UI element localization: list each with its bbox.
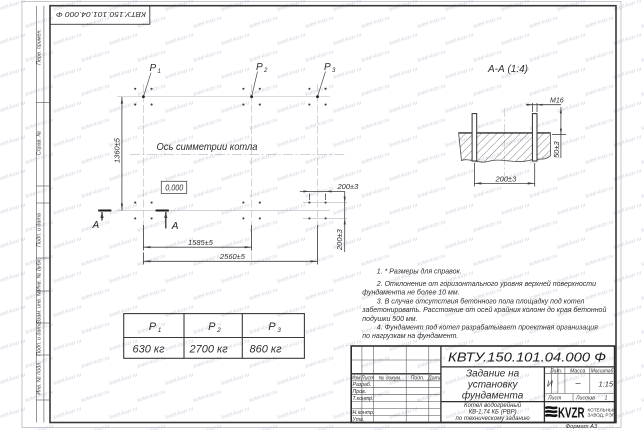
svg-text:2560±5: 2560±5 xyxy=(219,252,246,261)
svg-text:3: 3 xyxy=(277,327,281,334)
svg-text:КВТУ.150.101.04.000 Ф: КВТУ.150.101.04.000 Ф xyxy=(56,10,146,19)
svg-text:Листов: Листов xyxy=(575,396,595,402)
svg-text:Подп. и дата: Подп. и дата xyxy=(37,213,43,247)
svg-text:установку: установку xyxy=(467,380,519,391)
svg-text:1: 1 xyxy=(605,396,608,402)
svg-text:Н.контр.: Н.контр. xyxy=(353,410,375,416)
svg-text:Взам. инв. №: Взам. инв. № xyxy=(37,290,43,324)
svg-text:А: А xyxy=(171,221,179,232)
svg-text:№ докум.: № докум. xyxy=(379,376,402,382)
svg-text:Р: Р xyxy=(256,62,263,73)
svg-text:А: А xyxy=(92,220,100,231)
svg-text:Справ. №: Справ. № xyxy=(37,131,43,156)
svg-text:фундамента: фундамента xyxy=(462,389,524,401)
svg-text:фундамента не более 10 мм.: фундамента не более 10 мм. xyxy=(362,289,459,297)
svg-text:2: 2 xyxy=(263,68,268,74)
svg-text:3. В случае отсутствия бетонно: 3. В случае отсутствия бетонного пола пл… xyxy=(377,298,585,306)
svg-text:А-А (1:4): А-А (1:4) xyxy=(487,64,528,75)
svg-text:1360±5: 1360±5 xyxy=(113,137,122,163)
svg-text:Лист: Лист xyxy=(360,376,375,382)
svg-text:Т.контр.: Т.контр. xyxy=(353,396,374,402)
svg-text:Пров.: Пров. xyxy=(353,389,367,395)
svg-text:0,000: 0,000 xyxy=(165,184,183,193)
svg-text:Задание на: Задание на xyxy=(466,369,520,380)
svg-text:Инв. № подл.: Инв. № подл. xyxy=(37,361,43,394)
svg-text:200±3: 200±3 xyxy=(337,182,360,191)
svg-text:Ось симметрии котла: Ось симметрии котла xyxy=(157,141,258,153)
svg-text:2: 2 xyxy=(216,327,221,334)
svg-text:Р: Р xyxy=(149,321,157,333)
svg-text:Р: Р xyxy=(150,63,157,74)
svg-text:Р: Р xyxy=(324,62,331,73)
svg-text:Р: Р xyxy=(208,321,216,333)
svg-text:1. * Размеры для справок.: 1. * Размеры для справок. xyxy=(377,268,462,276)
svg-text:50±3: 50±3 xyxy=(552,141,561,158)
svg-text:1:15: 1:15 xyxy=(599,379,614,388)
svg-text:2700 кг: 2700 кг xyxy=(189,344,229,356)
svg-text:1: 1 xyxy=(158,327,162,334)
svg-text:860 кг: 860 кг xyxy=(250,344,283,356)
svg-text:Перв. примен.: Перв. примен. xyxy=(37,29,43,65)
svg-text:Подп. и дата: Подп. и дата xyxy=(37,322,43,356)
svg-text:Лист: Лист xyxy=(547,396,562,402)
svg-text:забетонировать. Расстояние от: забетонировать. Расстояние от осей крайн… xyxy=(361,306,606,314)
svg-text:200±3: 200±3 xyxy=(495,175,518,184)
svg-text:КВ-1,74 КБ (РВР): КВ-1,74 КБ (РВР) xyxy=(469,410,517,416)
svg-text:М16: М16 xyxy=(550,97,564,104)
svg-text:Подп.: Подп. xyxy=(411,376,425,382)
svg-text:Лит.: Лит. xyxy=(549,368,562,374)
svg-text:подушки 500 мм.: подушки 500 мм. xyxy=(362,315,417,323)
svg-text:2. Отклонение от горизонтально: 2. Отклонение от горизонтального уровня … xyxy=(376,280,596,288)
svg-text:Котел водогрейный: Котел водогрейный xyxy=(464,402,522,409)
svg-text:Формат А3: Формат А3 xyxy=(566,424,598,430)
svg-text:КОТЕЛЬНЫЙ: КОТЕЛЬНЫЙ xyxy=(588,405,617,412)
svg-text:200±3: 200±3 xyxy=(335,228,344,251)
svg-text:по техническому заданию: по техническому заданию xyxy=(456,416,531,422)
svg-text:1: 1 xyxy=(158,69,161,75)
svg-text:Масса: Масса xyxy=(570,368,585,374)
svg-text:Инв. № дубл.: Инв. № дубл. xyxy=(37,258,43,291)
svg-text:Масштаб: Масштаб xyxy=(591,368,615,374)
svg-text:–: – xyxy=(575,378,582,388)
svg-text:ЗАВОД, РЭП: ЗАВОД, РЭП xyxy=(588,413,616,418)
svg-text:Р: Р xyxy=(268,321,276,333)
svg-text:1585±5: 1585±5 xyxy=(188,238,214,247)
svg-text:И: И xyxy=(547,379,553,388)
svg-text:4. Фундамент под котел разраба: 4. Фундамент под котел разрабатывает про… xyxy=(377,323,598,331)
svg-text:630 кг: 630 кг xyxy=(133,344,166,356)
svg-text:Разраб.: Разраб. xyxy=(353,382,372,388)
svg-text:KVZR: KVZR xyxy=(558,406,585,422)
svg-text:по нагрузкам на фундамент.: по нагрузкам на фундамент. xyxy=(362,332,458,340)
svg-text:КВТУ.150.101.04.000 Ф: КВТУ.150.101.04.000 Ф xyxy=(448,350,606,365)
svg-text:Утв.: Утв. xyxy=(353,417,365,423)
svg-text:Дата: Дата xyxy=(427,376,442,382)
